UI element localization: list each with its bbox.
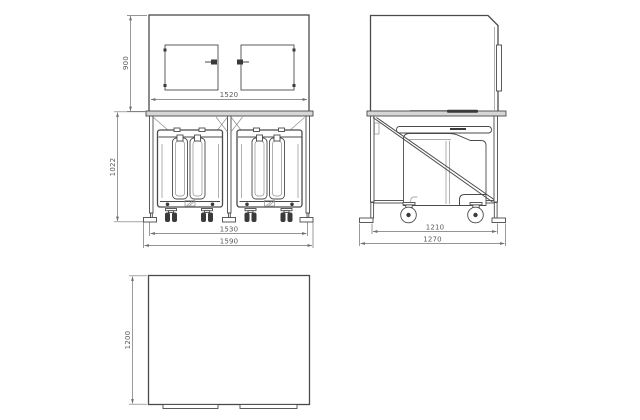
dimension-frame-height: 1022	[109, 112, 145, 222]
door-left	[164, 45, 219, 90]
foot-plate	[144, 218, 157, 223]
dimension-wheelbase-depth: 1210	[372, 224, 498, 235]
door-panel	[241, 45, 294, 90]
dimension-plan-depth: 1200	[124, 276, 147, 404]
side-view	[360, 16, 507, 223]
dimension-label: 900	[122, 56, 130, 70]
dimension-label: 1022	[109, 158, 117, 177]
dimension-label: 1520	[220, 91, 239, 99]
plan-view	[149, 276, 310, 409]
frame-center-post	[228, 116, 232, 213]
frame-upright-left	[150, 116, 154, 213]
dimension-label: 1270	[423, 236, 442, 244]
handle-bar	[447, 110, 478, 113]
dimension-label: 1530	[220, 226, 239, 234]
plan-outline	[149, 276, 310, 405]
foot-plate	[492, 218, 506, 223]
frame-top-rail	[146, 111, 313, 116]
hinge-mark	[293, 84, 296, 87]
frame-upright-left	[371, 116, 375, 202]
bin-lid	[397, 127, 492, 134]
dimension-wheelbase-width: 1530	[150, 223, 308, 237]
door-latch-icon	[211, 60, 217, 65]
foot-stem	[371, 203, 374, 219]
cabinet-side-outline	[371, 16, 499, 112]
plan-tab	[240, 405, 297, 409]
front-view	[144, 15, 314, 222]
caster	[201, 209, 213, 223]
wheeled-bin-left	[158, 128, 223, 207]
corner-brace	[154, 118, 170, 132]
frame-upright-right	[306, 116, 310, 213]
foot-stem	[494, 203, 497, 219]
caster	[281, 209, 293, 223]
side-strip	[497, 45, 502, 91]
plan-tab	[163, 405, 218, 409]
corner-brace	[289, 118, 305, 132]
frame-bracket	[375, 123, 380, 134]
caster	[165, 209, 177, 223]
drawing-canvas: 900 1520 1022 1530 1590 1210 1270	[0, 0, 640, 420]
caster	[245, 209, 257, 223]
frame-top-rail	[367, 111, 506, 116]
hinge-mark	[164, 49, 167, 52]
wheeled-bin-side	[397, 127, 492, 206]
foot-plate	[360, 218, 374, 223]
foot-plate	[223, 218, 236, 223]
dimension-label: 1200	[124, 331, 132, 350]
technical-drawing: 900 1520 1022 1530 1590 1210 1270	[0, 0, 640, 420]
door-latch-icon	[237, 60, 243, 65]
dimension-label: 1210	[426, 224, 445, 232]
wheeled-bin-right	[237, 128, 302, 207]
bin-lid-mark	[450, 128, 466, 130]
frame-upright-right	[494, 116, 498, 202]
dimension-cabinet-height: 900	[122, 16, 147, 112]
dimension-label: 1590	[220, 238, 239, 246]
door-panel	[165, 45, 218, 90]
hinge-mark	[164, 84, 167, 87]
foot-plate	[300, 218, 313, 223]
hinge-mark	[293, 49, 296, 52]
door-right	[237, 45, 296, 90]
